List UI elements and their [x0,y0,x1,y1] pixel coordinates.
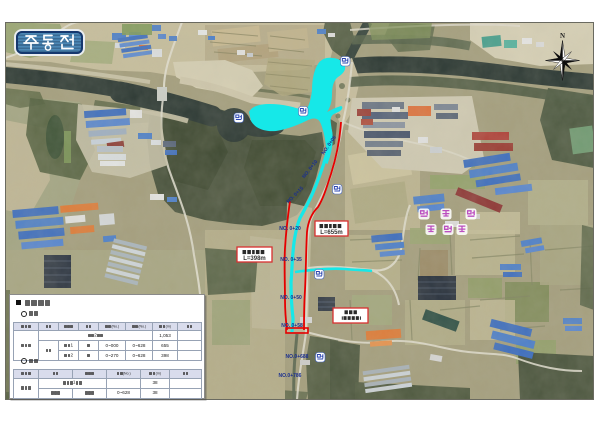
svg-text:NO. 0+58: NO. 0+58 [281,323,303,329]
svg-text:N: N [560,32,565,40]
svg-text:NO. 0+20: NO. 0+20 [279,226,301,232]
svg-text:NO.0+688: NO.0+688 [286,354,309,360]
svg-text:L=398m: L=398m [243,256,266,262]
svg-text:L=655m: L=655m [320,230,343,236]
svg-text:NO. 0+35: NO. 0+35 [280,257,302,263]
svg-text:NO. 0+50: NO. 0+50 [280,295,302,301]
svg-text:NO.0+786: NO.0+786 [279,373,302,379]
